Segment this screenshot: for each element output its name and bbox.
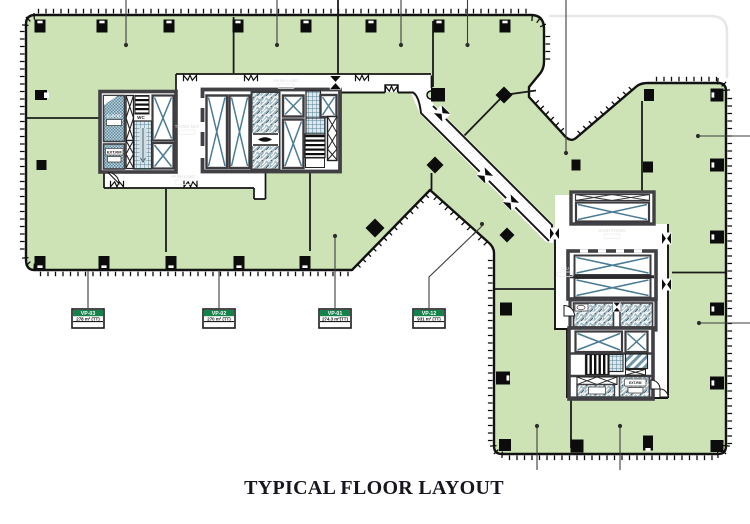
svg-text:931 m² (TT): 931 m² (TT) (417, 316, 441, 321)
svg-text:274.3 m²(TT): 274.3 m²(TT) (322, 316, 348, 321)
svg-text:C-POD: C-POD (107, 114, 122, 119)
svg-text:SANH THANG: SANH THANG (598, 228, 625, 233)
svg-text:THANG MAY: THANG MAY (175, 124, 200, 129)
svg-text:HANH LANG: HANH LANG (171, 174, 195, 179)
svg-text:LAU: LAU (561, 266, 569, 271)
svg-text:278 m² (TT): 278 m² (TT) (76, 316, 100, 321)
svg-text:EXT.RM: EXT.RM (629, 381, 642, 385)
svg-text:HANH LANG: HANH LANG (274, 78, 298, 83)
svg-text:WC: WC (137, 115, 145, 120)
svg-text:270 m² (TT): 270 m² (TT) (207, 316, 231, 321)
svg-text:TYPICAL FLOOR LAYOUT: TYPICAL FLOOR LAYOUT (244, 477, 504, 499)
svg-text:EXT.RM: EXT.RM (107, 150, 122, 155)
